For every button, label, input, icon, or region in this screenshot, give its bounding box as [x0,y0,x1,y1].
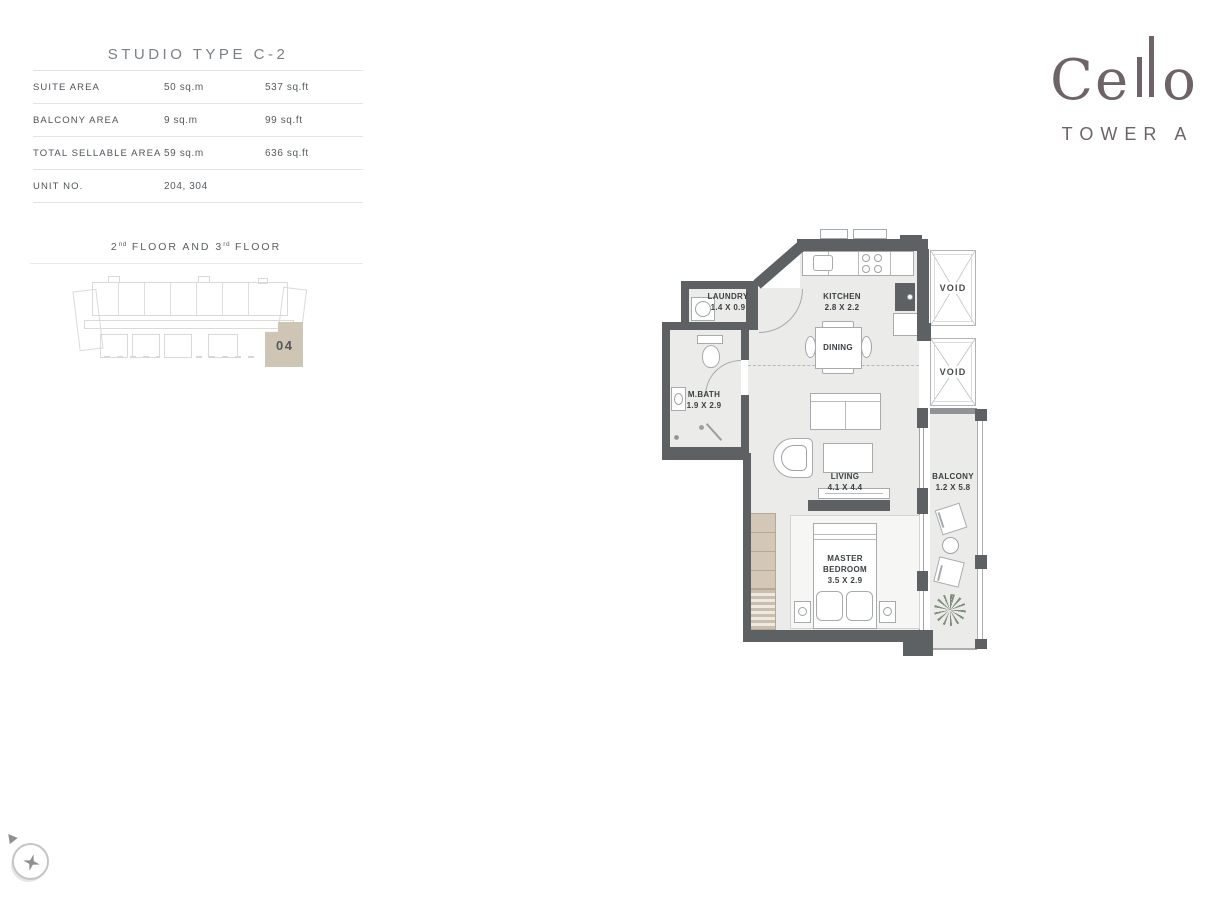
locator-outline [92,282,288,316]
brand-block: Ce o TOWER A [1040,36,1208,145]
duvet-fold-line [814,539,876,540]
rail-post [975,409,987,421]
locator-outline [164,334,192,358]
room-name: M.BATH [687,389,722,400]
duvet-fold-line [814,534,876,535]
locator-outline [100,334,128,358]
nightstand-lamp [883,607,892,616]
page-title: STUDIO TYPE C-2 [33,46,363,63]
wall-segment [662,322,748,330]
upper-cabinet [820,229,848,239]
row-imperial: 537 sq.ft [265,82,363,93]
balcony-label: BALCONY 1.2 X 5.8 [932,471,974,493]
laundry-label: LAUNDRY 1.4 X 0.9 [708,291,749,313]
mbath-label: M.BATH 1.9 X 2.9 [687,389,722,411]
locator-outline [258,278,268,284]
rail-post [975,639,987,649]
row-label: TOTAL SELLABLE AREA [33,148,164,159]
armchair-seat [781,445,807,471]
void-label: VOID [937,282,970,294]
tower-name: TOWER A [1040,124,1208,145]
stove-burner [874,265,882,273]
locator-line [144,283,145,315]
locator-dashes [104,356,160,358]
locator-line [222,283,223,315]
locator-line [118,283,119,315]
wardrobe-divider [751,551,775,552]
floor-number: 2 [111,241,119,253]
table-row: BALCONY AREA 9 sq.m 99 sq.ft [33,104,363,137]
balcony-rail [977,414,983,648]
wall-segment [741,330,749,360]
floor-plan: VOID VOID LAUNDRY 1.4 X [655,235,1000,670]
locator-dashes [196,356,256,358]
ordinal-suffix: nd [119,241,127,248]
sink-basin [674,393,683,405]
void-area-bottom: VOID [930,338,976,406]
stove-burner [862,254,870,262]
wall-segment [743,630,923,642]
room-name: DINING [823,342,853,353]
wall-post [917,488,928,514]
floor-text: FLOOR AND 3 [127,241,223,253]
locator-outline [108,276,120,283]
row-metric: 59 sq.m [164,148,265,159]
compass-star-icon [21,852,42,873]
dining-label: DINING [823,342,853,353]
logo-text-end: o [1162,53,1198,109]
wall-segment [743,453,751,638]
building-key-plan: 04 [78,276,308,372]
toilet-bowl [702,345,720,368]
row-label: UNIT NO. [33,181,164,192]
floor-text: FLOOR [230,241,281,253]
room-name: BEDROOM [823,564,867,575]
cello-logo: Ce o [1040,36,1208,109]
floor-level-label: 2nd FLOOR AND 3rd FLOOR [30,241,362,253]
room-dims: 3.5 X 2.9 [823,575,867,586]
stove-burner [862,265,870,273]
divider-line [30,263,363,264]
room-name: LAUNDRY [708,291,749,302]
logo-bar-icon [1149,36,1154,97]
row-imperial: 99 sq.ft [265,115,363,126]
table-row: SUITE AREA 50 sq.m 537 sq.ft [33,71,363,104]
wardrobe-divider [751,532,775,533]
void-label: VOID [937,366,970,378]
locator-line [170,283,171,315]
brochure-page: STUDIO TYPE C-2 SUITE AREA 50 sq.m 537 s… [0,0,1210,900]
wall-post [917,571,928,591]
unit-number-label: 04 [276,338,293,353]
row-metric: 204, 304 [164,181,265,192]
wall-post [917,408,928,428]
void-area-top: VOID [930,250,976,326]
compass-icon [12,843,49,880]
room-dims: 1.2 X 5.8 [932,482,974,493]
bedroom-partition-wall [808,500,890,511]
locator-line [196,283,197,315]
plant [934,594,966,626]
wall-segment [917,249,929,330]
room-dims: 4.1 X 4.4 [828,482,863,493]
row-imperial: 636 sq.ft [265,148,363,159]
table-row: UNIT NO. 204, 304 [33,170,363,203]
room-name: KITCHEN [823,291,861,302]
toilet-tank [697,335,723,344]
logo-bar-icon [1137,57,1142,97]
row-label: SUITE AREA [33,82,164,93]
kitchen-sink [813,255,833,271]
pillow [846,591,873,621]
shelving-unit [750,589,776,630]
shower-drain [674,435,679,440]
counter-divider [858,252,859,275]
wall-segment [662,447,749,460]
wardrobe-divider [751,570,775,571]
rail-post [975,555,987,569]
upper-cabinet [853,229,887,239]
room-name: BALCONY [932,471,974,482]
counter-divider [890,252,891,275]
fridge [893,313,919,336]
table-row: TOTAL SELLABLE AREA 59 sq.m 636 sq.ft [33,137,363,170]
stove-burner [874,254,882,262]
room-name: MASTER [823,553,867,564]
compass-north-arrow-icon [4,831,17,844]
balcony-edge [930,648,977,650]
locator-outline [208,334,238,358]
wall-segment [741,395,749,447]
locator-line [248,283,249,315]
locator-outline [198,276,210,283]
balcony-top-wall [930,408,977,414]
appliance-knob [907,294,913,300]
shower-head [699,425,704,430]
room-dims: 2.8 X 2.2 [823,302,861,313]
wall-segment [662,322,670,460]
logo-text-start: Ce [1050,53,1130,109]
row-label: BALCONY AREA [33,115,164,126]
kitchen-label: KITCHEN 2.8 X 2.2 [823,291,861,313]
coffee-table [823,443,873,473]
room-name: LIVING [828,471,863,482]
master-bedroom-label: MASTER BEDROOM 3.5 X 2.9 [823,553,867,587]
locator-outline [132,334,160,358]
room-dims: 1.9 X 2.9 [687,400,722,411]
locator-corridor [84,320,294,329]
row-metric: 9 sq.m [164,115,265,126]
wall-segment-diagonal [753,242,804,288]
living-label: LIVING 4.1 X 4.4 [828,471,863,493]
balcony-table [942,537,959,554]
pillow [816,591,843,621]
nightstand-lamp [798,607,807,616]
sofa-cushion-line [845,402,846,429]
dining-chair [861,336,872,358]
wall-segment [917,323,931,341]
wall-segment [903,630,933,656]
row-metric: 50 sq.m [164,82,265,93]
unit-info-table: SUITE AREA 50 sq.m 537 sq.ft BALCONY ARE… [33,70,363,203]
room-dims: 1.4 X 0.9 [708,302,749,313]
